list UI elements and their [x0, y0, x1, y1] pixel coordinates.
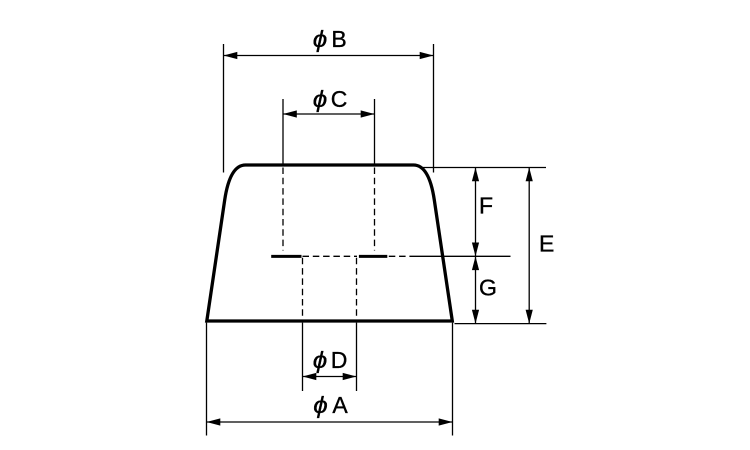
svg-text:ϕ: ϕ: [313, 347, 328, 373]
svg-text:E: E: [539, 231, 554, 257]
svg-text:F: F: [479, 193, 493, 219]
svg-text:ϕ: ϕ: [313, 26, 328, 52]
svg-text:G: G: [479, 275, 497, 301]
svg-text:D: D: [331, 347, 348, 373]
svg-text:C: C: [331, 86, 348, 112]
svg-text:B: B: [331, 26, 346, 52]
svg-text:ϕ: ϕ: [313, 392, 328, 418]
svg-text:A: A: [332, 392, 348, 418]
svg-text:ϕ: ϕ: [313, 86, 328, 112]
